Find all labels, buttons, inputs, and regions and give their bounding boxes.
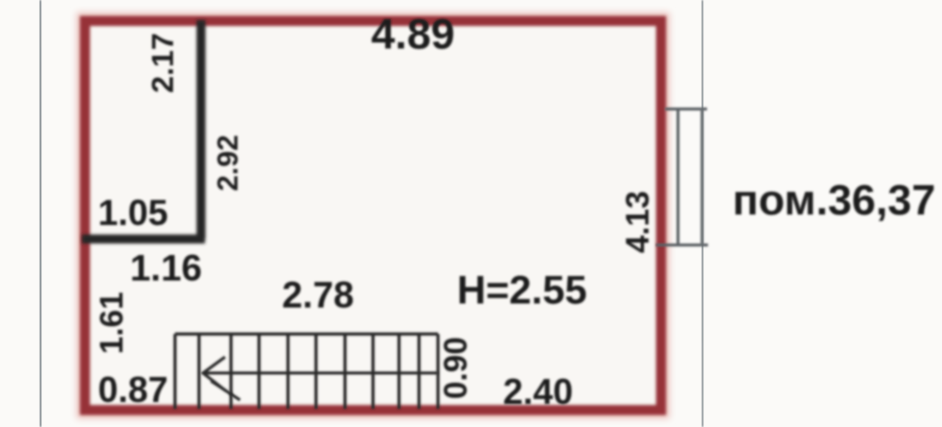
svg-text:4.89: 4.89 <box>371 10 455 58</box>
svg-text:2.92: 2.92 <box>212 135 244 191</box>
svg-text:4.13: 4.13 <box>620 191 656 253</box>
svg-text:1.05: 1.05 <box>98 192 168 233</box>
svg-text:1.16: 1.16 <box>130 247 202 288</box>
svg-text:пом.36,37: пом.36,37 <box>732 176 935 224</box>
svg-text:2.78: 2.78 <box>282 274 354 315</box>
svg-text:2.40: 2.40 <box>503 371 573 412</box>
svg-text:0.87: 0.87 <box>98 369 168 410</box>
svg-text:H=2.55: H=2.55 <box>457 268 587 312</box>
svg-text:2.17: 2.17 <box>145 33 180 93</box>
svg-text:0.90: 0.90 <box>438 337 474 399</box>
svg-text:1.61: 1.61 <box>94 292 130 354</box>
